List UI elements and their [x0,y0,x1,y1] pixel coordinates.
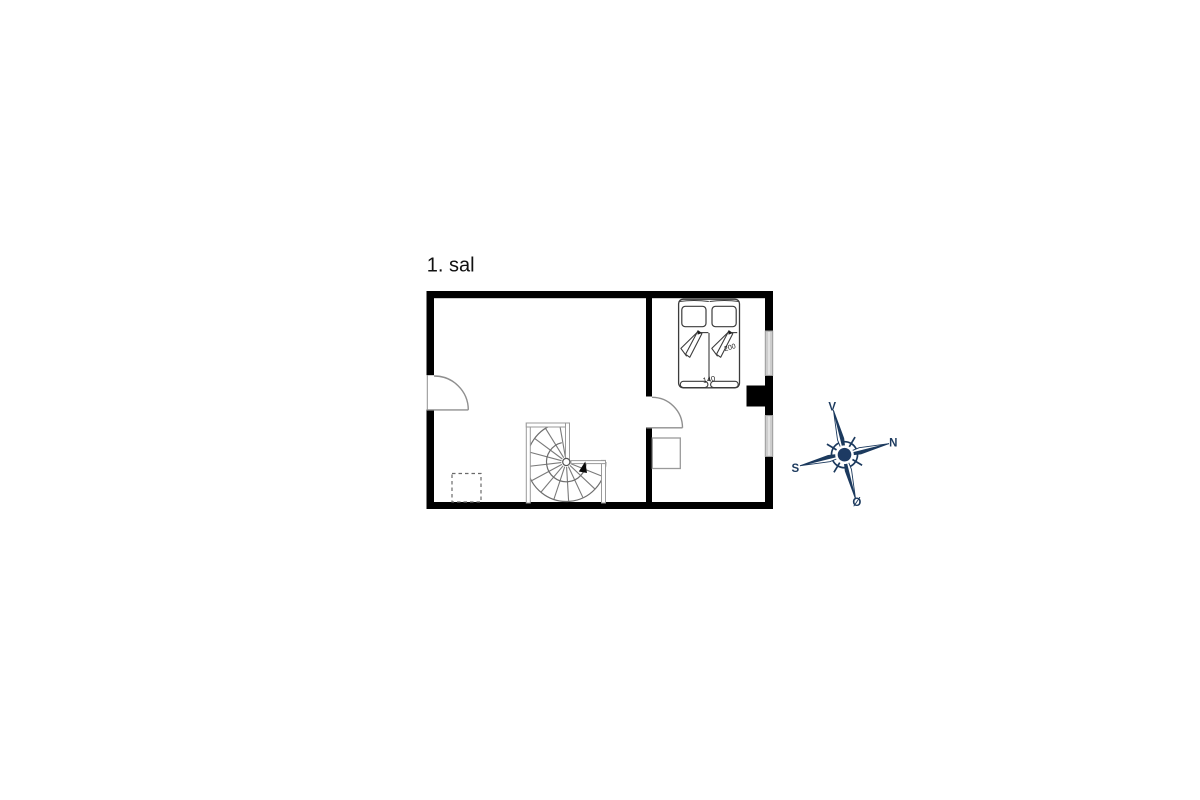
svg-text:V: V [828,402,836,414]
svg-text:N: N [889,438,897,450]
svg-text:Ø: Ø [852,497,861,509]
svg-text:S: S [791,463,799,475]
svg-text:1. sal: 1. sal [427,255,475,277]
